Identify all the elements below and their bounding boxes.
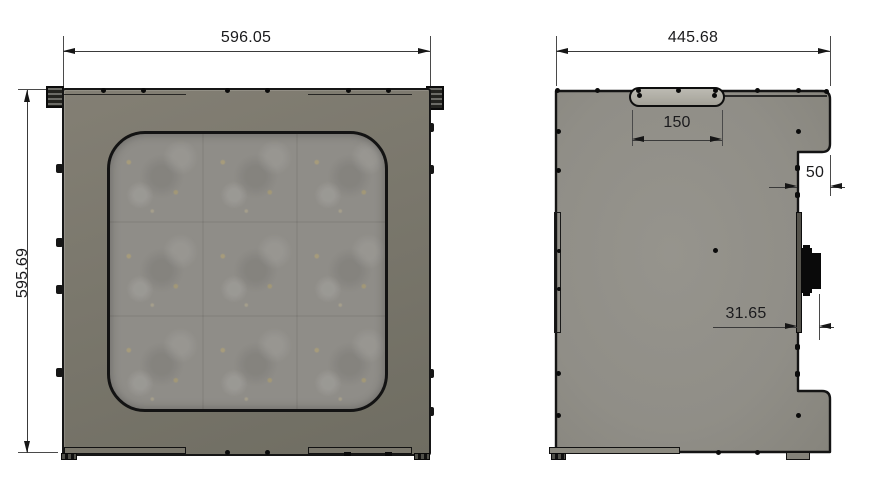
handle-screw — [637, 93, 642, 98]
screw-dot — [796, 88, 801, 93]
screw-dot — [595, 88, 600, 93]
dimension-arrow — [710, 136, 722, 142]
screw-dot — [713, 248, 718, 253]
screw-bump — [795, 344, 800, 350]
dimension-arrow — [819, 323, 831, 329]
screw-bump — [795, 165, 800, 171]
screw-bump — [795, 192, 800, 198]
screw-dot — [713, 88, 718, 93]
foot-tab — [786, 452, 810, 460]
dimension-arrow — [785, 323, 797, 329]
dimension-arrow — [830, 183, 842, 189]
extension-line — [556, 36, 557, 86]
connector-nub — [803, 245, 810, 249]
connector-nub — [803, 292, 810, 296]
screw-dot — [676, 88, 681, 93]
screw-dot — [755, 450, 760, 455]
screw-bump — [795, 371, 800, 377]
dimension-arrow — [632, 136, 644, 142]
screw-dot — [636, 88, 641, 93]
screw-dot — [556, 129, 561, 134]
extension-line — [830, 36, 831, 86]
bottom-rail — [549, 447, 680, 454]
left-edge-slot — [554, 212, 561, 333]
handle-dimension-label: 150 — [647, 114, 707, 132]
dimension-arrow — [785, 183, 797, 189]
screw-dot — [555, 88, 560, 93]
dimension-line — [556, 51, 830, 52]
screw-dot — [755, 88, 760, 93]
side-width-dimension-label: 445.68 — [643, 29, 743, 47]
screw-dot — [716, 450, 721, 455]
connector-dimension-label: 31.65 — [711, 305, 781, 323]
screw-dot — [796, 129, 801, 134]
dimension-line — [632, 140, 722, 141]
extension-line — [819, 294, 820, 340]
screw-dot — [556, 413, 561, 418]
step-dimension-label: 50 — [797, 164, 833, 182]
dimension-arrow — [556, 48, 568, 54]
screw-dot — [796, 413, 801, 418]
screw-dot — [557, 249, 561, 253]
dimension-arrow — [818, 48, 830, 54]
screw-dot — [824, 89, 829, 94]
screw-dot — [556, 371, 561, 376]
handle-screw — [712, 93, 717, 98]
connector-block — [811, 253, 821, 289]
drawing-canvas: 596.05 595.69 — [0, 0, 889, 487]
foot-tab — [551, 453, 566, 460]
screw-dot — [557, 287, 561, 291]
side-panel-outline — [0, 0, 889, 487]
screw-dot — [556, 168, 561, 173]
